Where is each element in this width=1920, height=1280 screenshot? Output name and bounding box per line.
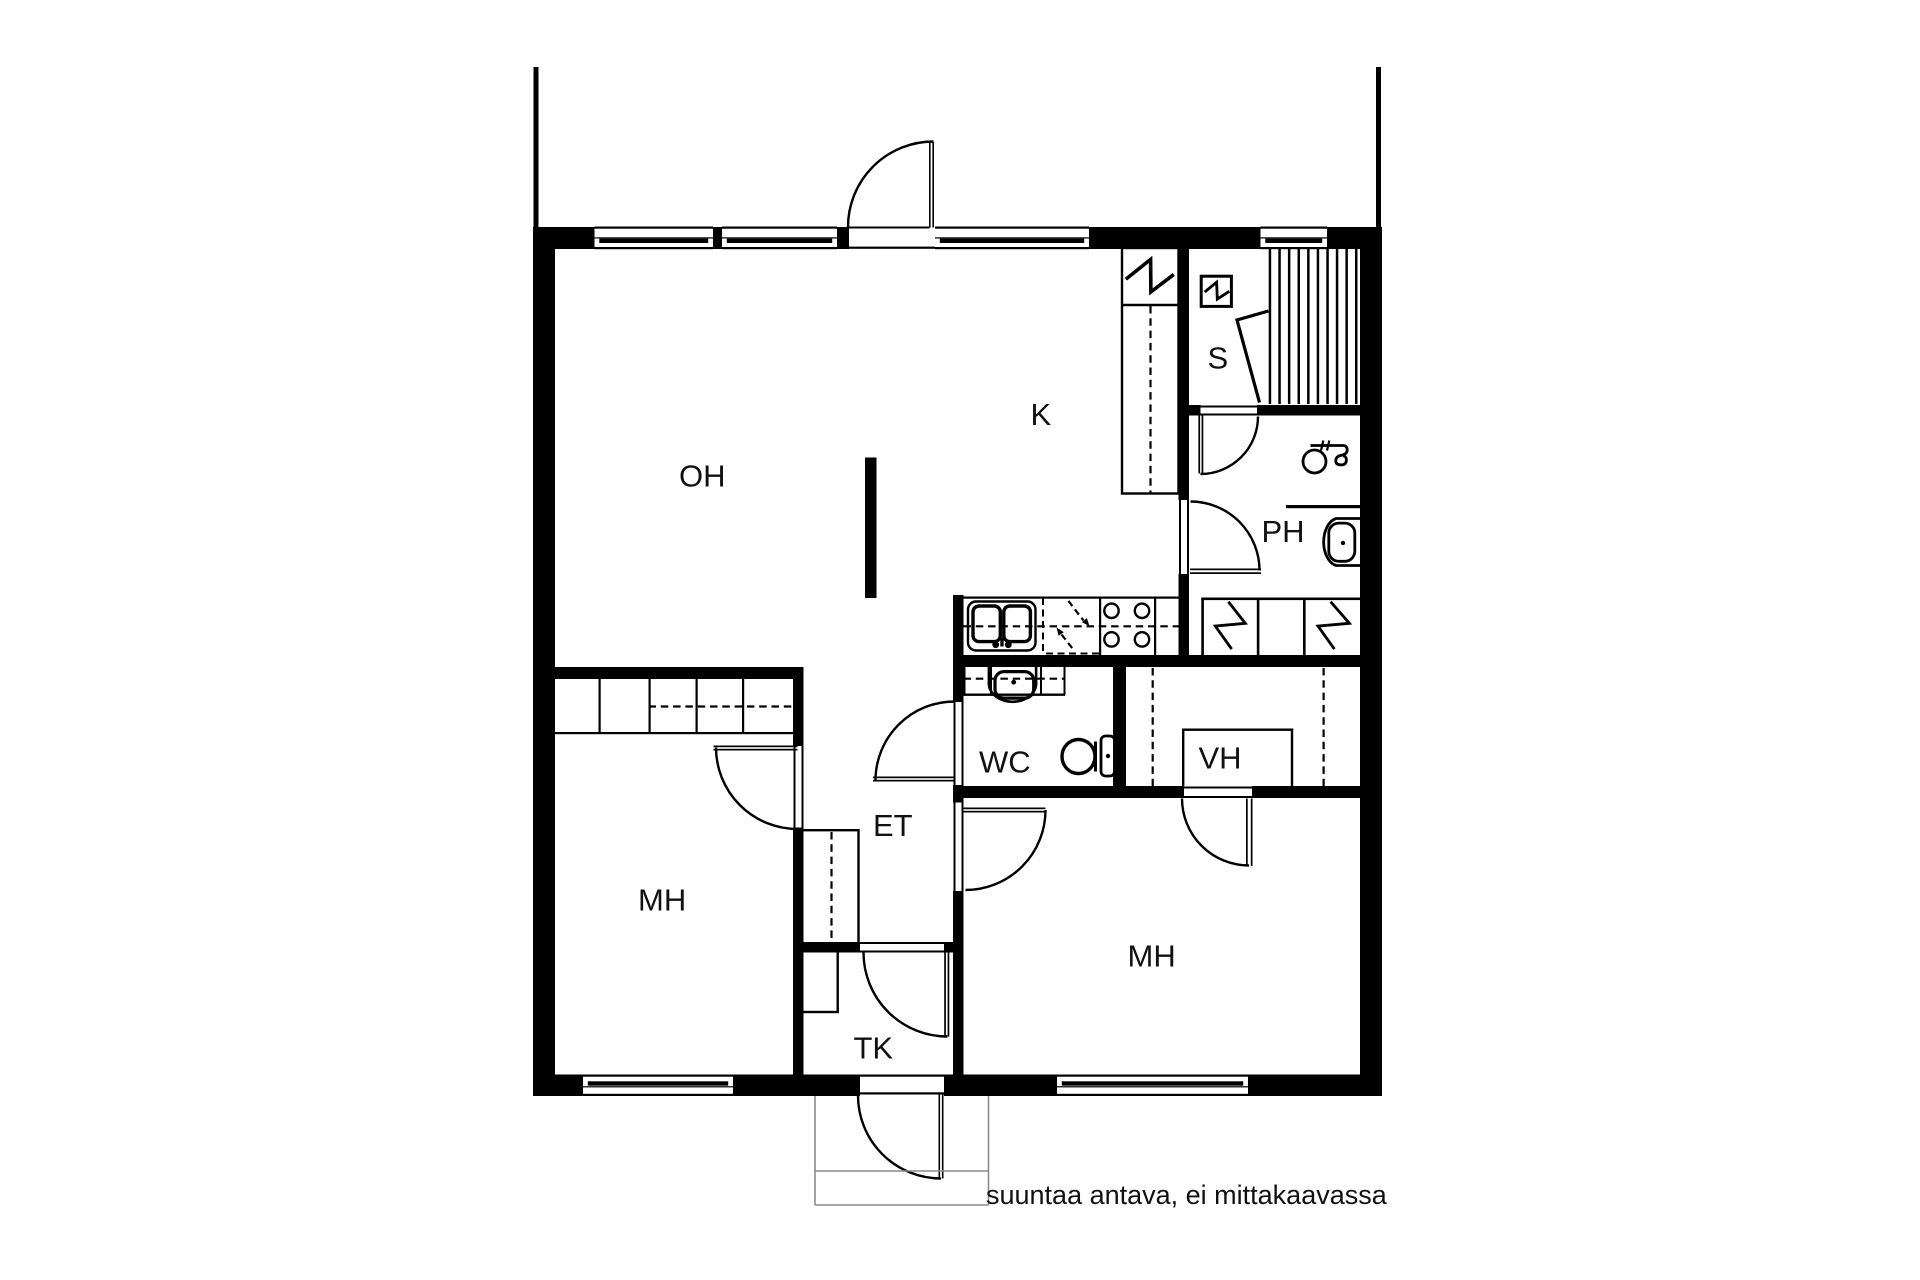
svg-text:TK: TK — [854, 1031, 894, 1066]
svg-text:S: S — [1208, 341, 1229, 376]
svg-text:K: K — [1031, 397, 1052, 432]
svg-text:ET: ET — [873, 808, 913, 843]
svg-text:WC: WC — [979, 745, 1031, 780]
svg-text:PH: PH — [1262, 514, 1305, 549]
svg-text:OH: OH — [679, 459, 726, 494]
svg-text:MH: MH — [638, 883, 686, 918]
svg-text:suuntaa antava, ei mittakaavas: suuntaa antava, ei mittakaavassa — [986, 1180, 1388, 1210]
svg-text:VH: VH — [1199, 741, 1242, 776]
svg-text:MH: MH — [1128, 939, 1176, 974]
